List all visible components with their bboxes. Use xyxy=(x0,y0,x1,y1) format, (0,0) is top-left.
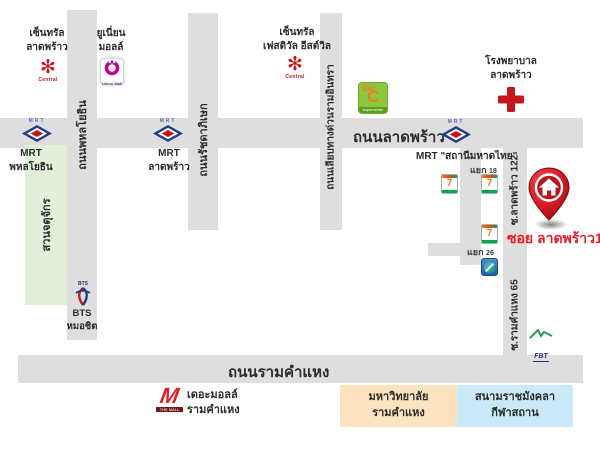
road-label-soi-ladprao-122: ซ.ลาดพร้าว 122 xyxy=(508,155,523,225)
union-mall-logo-icon: Union Mall xyxy=(100,58,124,85)
seven-eleven-icon: 7 xyxy=(481,174,498,194)
road-label-soi-ramkhamhaeng-65: ซ.รามคำแหง 65 xyxy=(508,279,523,350)
mrt-phahonyothin-label: MRT พหลโยธิน xyxy=(9,147,52,174)
chatuchak-park-label: สวนจตุจักร xyxy=(37,198,55,251)
seven-eleven-icon: 7 xyxy=(481,224,498,244)
central-ladprao-label: เซ็นทรัล ลาดพร้าว xyxy=(26,27,67,54)
seven-eleven-icon: 7 xyxy=(441,174,458,194)
hospital-ladprao-label: โรงพยาบาล ลาดพร้าว xyxy=(485,55,537,82)
central-flower-icon: ✻ xyxy=(283,55,307,74)
globe-badge-icon xyxy=(481,258,498,276)
road-label-phahonyothin: ถนนพหลโยธิน xyxy=(73,100,91,170)
union-mall-ring-icon xyxy=(101,59,123,77)
road-label-ramkhamhaeng: ถนนรามคำแหง xyxy=(228,360,329,384)
mrt-diamond-icon xyxy=(153,125,183,142)
mrt-logo-phahonyothin-icon: MRT xyxy=(22,119,52,146)
location-map: ถนนพหลโยธิน ถนนรัชดาภิเษก ถนนเลียบทางด่ว… xyxy=(0,0,600,464)
mrt-ladprao-label: MRT ลาดพร้าว xyxy=(148,147,189,174)
mrt-mahatthai-label: MRT "สถานีมหาดไทย" xyxy=(416,149,517,164)
globe-sphere-icon xyxy=(484,262,495,273)
hospital-red-cross-icon xyxy=(498,87,524,112)
destination-pin-icon xyxy=(528,167,570,225)
mrt-logo-mahatthai-icon: MRT xyxy=(441,120,471,147)
road-label-ramindra-expressway: ถนนเลียบทางด่วนรามอินทรา xyxy=(324,64,339,190)
the-mall-ramkhamhaeng-label: เดอะมอลล์ รามคำแหง xyxy=(187,388,240,418)
ramkhamhaeng-university-zone: มหาวิทยาลัย รามคำแหง xyxy=(340,385,457,427)
big-c-logo-icon: Big C supercenter xyxy=(358,82,388,114)
mrt-diamond-icon xyxy=(441,126,471,143)
bts-logo-icon: BTS xyxy=(72,280,93,311)
central-eastville-label: เซ็นทรัล เฟสติวัล อีสต์วิล xyxy=(263,26,331,53)
central-ladprao-logo-icon: ✻ Central xyxy=(36,58,60,83)
rajamangala-stadium-zone: สนามราชมังคลา กีฬาสถาน xyxy=(457,385,573,427)
intersection-yaek-18-label: แยก 18 xyxy=(470,163,497,177)
union-mall-label: ยูเนี่ยน มอลล์ xyxy=(97,27,126,54)
the-mall-logo-icon: M THE MALL xyxy=(156,386,183,412)
fbt-logo-icon: FBT xyxy=(527,327,555,363)
mrt-diamond-icon xyxy=(22,125,52,142)
bts-mochit-label: BTS หมอชิต xyxy=(67,308,98,334)
svg-text:BTS: BTS xyxy=(78,281,89,287)
central-eastville-logo-icon: ✻ Central xyxy=(283,55,307,80)
bts-glyph-icon: BTS xyxy=(73,280,93,306)
central-flower-icon: ✻ xyxy=(36,58,60,77)
intersection-yaek-26-label: แยก 26 xyxy=(467,245,494,259)
road-label-ratchadaphisek: ถนนรัชดาภิเษก xyxy=(194,103,212,176)
road-label-ladprao: ถนนลาดพร้าว xyxy=(353,125,445,149)
destination-label: ซอย ลาดพร้าว122 xyxy=(507,228,600,250)
mrt-logo-ladprao-icon: MRT xyxy=(153,119,183,146)
fbt-wings-icon xyxy=(528,329,554,340)
house-door-icon xyxy=(547,191,551,196)
